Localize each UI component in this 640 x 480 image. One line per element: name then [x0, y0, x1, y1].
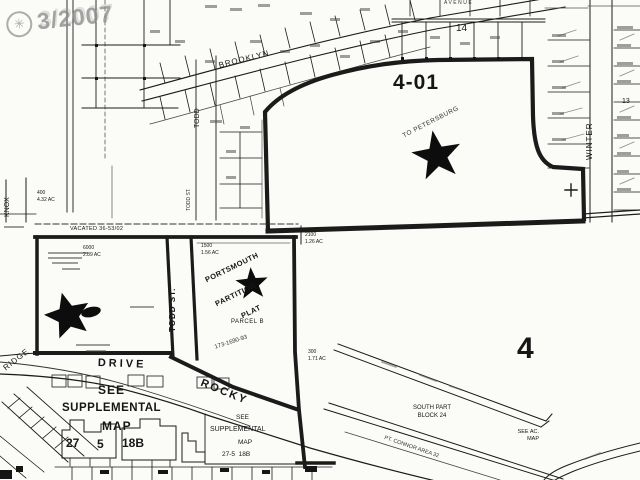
lot-6000-number: 6000 — [83, 246, 94, 251]
street-label-todd-st: TODD ST. — [169, 288, 177, 332]
block-24-label: BLOCK 24 — [403, 413, 461, 419]
supplemental-large-supplemental: SUPPLEMENTAL — [62, 403, 161, 415]
lot-6000-area: 2.89 AC — [83, 253, 101, 258]
subdivision-lots — [0, 362, 334, 480]
block-401-label: 4-01 — [393, 72, 439, 93]
supplemental-small-ref: 27-5 18B — [222, 452, 250, 459]
street-label-avenue: AVENUE — [444, 1, 473, 6]
lot-300-number: 300 — [308, 350, 316, 355]
vacated-street-note: VACATED 36-53/02 — [70, 227, 123, 233]
supplemental-small-see: SEE — [236, 415, 249, 422]
lot-400-area: 4.32 AC — [37, 198, 55, 203]
street-label-todd: TODD — [194, 108, 201, 128]
lot-1500-number: 1500 — [201, 244, 212, 249]
lot-2100-number: 2100 — [305, 233, 316, 238]
lot-13-label: 13 — [622, 98, 630, 105]
lot-1500-area: 1.56 AC — [201, 251, 219, 256]
seal-icon: ✳ — [5, 9, 34, 38]
street-label-winter: WINTER — [586, 122, 594, 160]
lot-400-number: 400 — [37, 191, 45, 196]
lot-14-label: 14 — [456, 24, 467, 34]
lot-300-area: 1.71 AC — [308, 357, 326, 362]
street-label-drive: DRIVE — [98, 358, 147, 371]
south-part-label: SOUTH PART — [403, 405, 461, 411]
supplemental-large-ref-27: 27 — [66, 437, 79, 449]
star-icon — [411, 130, 460, 179]
plat-map-scan: ✳ 3/2007 BROOKLYN AVENUE WINTER TODD TOD… — [0, 0, 640, 480]
section-4-label: 4 — [517, 334, 534, 364]
avenue-block-lots — [392, 0, 545, 59]
supplemental-large-see: SEE — [98, 384, 125, 396]
lot-2100-area: 1.26 AC — [305, 240, 323, 245]
parcel-b-label: PARCEL B — [231, 319, 264, 325]
supplemental-large-map: MAP — [102, 420, 132, 432]
supplemental-large-ref-18b: 18B — [122, 437, 144, 449]
scan-noise — [4, 4, 633, 352]
street-label-todd-st-upper: TODD ST. — [187, 188, 192, 211]
supplemental-small-map: MAP — [238, 440, 252, 447]
supplemental-large-ref-5: 5 — [97, 438, 104, 450]
see-ac-map-note-line2: MAP — [505, 437, 539, 443]
street-label-knox: KNOX — [4, 197, 11, 217]
star-icon — [44, 293, 88, 339]
see-ac-map-note-line1: SEE AC. — [505, 430, 539, 436]
supplemental-small-supplemental: SUPPLEMENTAL — [210, 426, 266, 433]
